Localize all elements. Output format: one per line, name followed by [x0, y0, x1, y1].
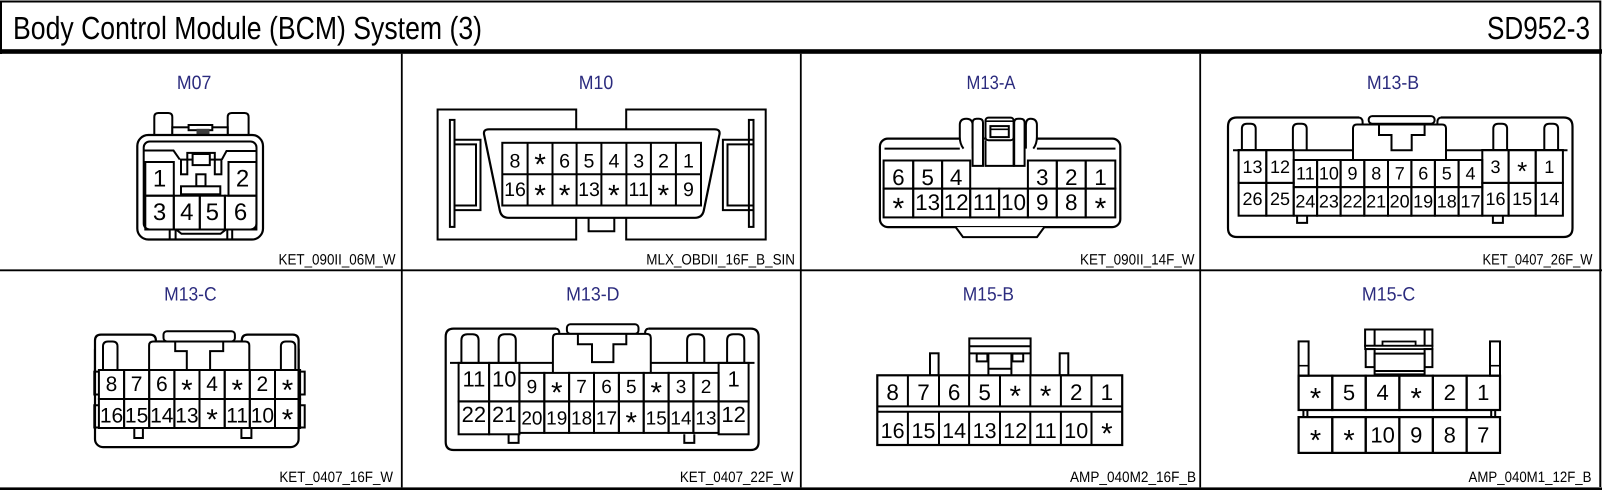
svg-text:*: *: [1517, 156, 1527, 186]
svg-text:3: 3: [153, 199, 166, 226]
svg-text:12: 12: [1003, 419, 1027, 443]
svg-text:13: 13: [578, 179, 600, 201]
svg-text:*: *: [1009, 380, 1021, 413]
svg-text:24: 24: [1295, 191, 1315, 211]
svg-text:23: 23: [1319, 191, 1339, 211]
svg-text:11: 11: [1296, 164, 1315, 184]
svg-text:13: 13: [1242, 157, 1262, 177]
svg-text:*: *: [650, 377, 662, 410]
svg-text:7: 7: [1395, 164, 1405, 184]
svg-text:10: 10: [251, 405, 274, 428]
svg-text:26: 26: [1242, 189, 1262, 209]
svg-text:*: *: [534, 149, 546, 182]
svg-text:16: 16: [881, 419, 905, 443]
svg-text:4: 4: [1465, 164, 1475, 184]
svg-text:6: 6: [559, 151, 570, 173]
svg-text:2: 2: [658, 151, 669, 173]
svg-text:1: 1: [1101, 380, 1114, 405]
svg-text:*: *: [1101, 418, 1113, 451]
svg-text:10: 10: [1319, 164, 1339, 184]
svg-text:9: 9: [683, 179, 694, 201]
svg-text:11: 11: [462, 366, 485, 391]
svg-text:25: 25: [1270, 189, 1290, 209]
svg-text:17: 17: [596, 408, 617, 429]
svg-text:5: 5: [1442, 164, 1452, 184]
svg-text:13: 13: [915, 190, 940, 215]
svg-text:14: 14: [1539, 189, 1559, 209]
svg-text:9: 9: [1410, 423, 1422, 448]
svg-text:15: 15: [646, 408, 667, 429]
svg-text:11: 11: [973, 190, 996, 215]
svg-text:8: 8: [510, 151, 521, 173]
svg-text:20: 20: [521, 408, 542, 429]
svg-text:16: 16: [504, 179, 526, 201]
svg-text:*: *: [608, 180, 620, 213]
svg-text:8: 8: [1371, 164, 1381, 184]
svg-text:11: 11: [629, 179, 649, 201]
svg-text:10: 10: [1064, 419, 1088, 443]
svg-text:22: 22: [1342, 191, 1362, 211]
svg-text:*: *: [1343, 425, 1354, 457]
svg-text:7: 7: [131, 373, 143, 396]
svg-text:6: 6: [1418, 164, 1428, 184]
svg-text:10: 10: [492, 366, 516, 391]
svg-text:M15-B: M15-B: [963, 284, 1014, 305]
svg-text:4: 4: [206, 373, 218, 396]
svg-text:15: 15: [125, 405, 148, 428]
svg-text:6: 6: [601, 377, 612, 398]
svg-text:2: 2: [257, 373, 269, 396]
svg-text:2: 2: [236, 165, 249, 192]
svg-text:15: 15: [1512, 189, 1532, 209]
svg-text:11: 11: [226, 405, 248, 428]
svg-text:12: 12: [721, 402, 745, 427]
svg-text:*: *: [282, 374, 294, 407]
svg-text:14: 14: [942, 419, 966, 443]
svg-text:1: 1: [1544, 157, 1554, 177]
svg-text:1: 1: [1094, 165, 1107, 190]
svg-text:*: *: [534, 180, 546, 213]
svg-text:AMP_040M1_12F_B: AMP_040M1_12F_B: [1469, 469, 1592, 486]
svg-text:10: 10: [1001, 190, 1026, 215]
svg-text:5: 5: [921, 165, 934, 190]
svg-text:*: *: [181, 374, 193, 407]
svg-text:5: 5: [1343, 380, 1355, 405]
svg-text:*: *: [1411, 383, 1422, 415]
svg-text:13: 13: [973, 419, 997, 443]
svg-text:*: *: [626, 407, 638, 440]
svg-text:*: *: [1310, 383, 1321, 415]
svg-text:10: 10: [1370, 423, 1394, 448]
svg-text:14: 14: [670, 408, 692, 429]
svg-text:19: 19: [546, 408, 567, 429]
svg-text:Body Control Module (BCM) Syst: Body Control Module (BCM) System (3): [13, 10, 482, 46]
svg-text:5: 5: [626, 377, 637, 398]
svg-text:18: 18: [571, 408, 592, 429]
svg-text:KET_0407_16F_W: KET_0407_16F_W: [279, 469, 393, 486]
svg-text:1: 1: [683, 151, 694, 173]
svg-text:4: 4: [1376, 380, 1388, 405]
svg-text:18: 18: [1437, 191, 1457, 211]
svg-text:4: 4: [950, 165, 963, 190]
svg-text:M10: M10: [579, 73, 613, 94]
svg-text:*: *: [282, 403, 294, 436]
svg-text:KET_0407_26F_W: KET_0407_26F_W: [1483, 251, 1594, 268]
svg-text:KET_090II_06M_W: KET_090II_06M_W: [279, 251, 397, 268]
svg-text:3: 3: [1490, 157, 1500, 177]
svg-text:4: 4: [180, 199, 193, 226]
svg-text:2: 2: [1065, 165, 1078, 190]
svg-text:7: 7: [917, 380, 930, 405]
svg-text:6: 6: [948, 380, 961, 405]
svg-text:12: 12: [944, 190, 969, 215]
svg-text:16: 16: [100, 405, 123, 428]
svg-text:17: 17: [1460, 191, 1480, 211]
svg-text:M07: M07: [177, 73, 211, 94]
svg-text:3: 3: [633, 151, 644, 173]
svg-text:1: 1: [153, 165, 166, 192]
svg-text:15: 15: [912, 419, 936, 443]
svg-text:M15-C: M15-C: [1362, 284, 1415, 305]
svg-text:*: *: [206, 403, 218, 436]
svg-text:*: *: [893, 193, 905, 226]
svg-text:2: 2: [1070, 380, 1083, 405]
svg-text:14: 14: [150, 405, 174, 428]
svg-text:13: 13: [695, 408, 716, 429]
svg-text:*: *: [1095, 193, 1107, 226]
svg-text:9: 9: [1347, 164, 1357, 184]
svg-text:4: 4: [608, 151, 619, 173]
svg-text:3: 3: [1036, 165, 1049, 190]
svg-text:*: *: [1040, 380, 1052, 413]
svg-text:*: *: [559, 180, 571, 213]
svg-text:M13-A: M13-A: [967, 73, 1016, 94]
svg-text:8: 8: [106, 373, 118, 396]
svg-text:*: *: [551, 377, 563, 410]
svg-text:7: 7: [576, 377, 587, 398]
svg-text:9: 9: [1036, 190, 1049, 215]
svg-text:7: 7: [1477, 423, 1489, 448]
svg-text:KET_090II_14F_W: KET_090II_14F_W: [1080, 251, 1195, 268]
svg-text:6: 6: [234, 199, 247, 226]
svg-text:6: 6: [892, 165, 905, 190]
svg-text:AMP_040M2_16F_B: AMP_040M2_16F_B: [1070, 469, 1196, 486]
svg-text:MLX_OBDII_16F_B_SIN: MLX_OBDII_16F_B_SIN: [646, 251, 795, 268]
svg-text:2: 2: [701, 377, 712, 398]
svg-text:6: 6: [156, 373, 168, 396]
svg-text:KET_0407_22F_W: KET_0407_22F_W: [680, 469, 794, 486]
svg-text:5: 5: [978, 380, 991, 405]
svg-text:SD952-3: SD952-3: [1487, 10, 1590, 46]
svg-text:M13-B: M13-B: [1367, 73, 1419, 94]
svg-text:22: 22: [462, 402, 486, 427]
svg-text:8: 8: [1065, 190, 1078, 215]
svg-text:*: *: [231, 374, 243, 407]
svg-text:3: 3: [676, 377, 687, 398]
svg-text:1: 1: [1477, 380, 1489, 405]
svg-text:20: 20: [1390, 191, 1410, 211]
svg-text:2: 2: [1444, 380, 1456, 405]
svg-text:21: 21: [1366, 191, 1386, 211]
svg-text:*: *: [658, 180, 670, 213]
svg-text:9: 9: [527, 377, 538, 398]
svg-text:1: 1: [727, 366, 739, 391]
svg-text:*: *: [1310, 425, 1321, 457]
svg-text:13: 13: [175, 405, 198, 428]
svg-text:12: 12: [1270, 157, 1290, 177]
svg-text:21: 21: [492, 402, 516, 427]
svg-text:M13-C: M13-C: [164, 284, 217, 305]
svg-text:11: 11: [1034, 419, 1056, 443]
svg-text:8: 8: [1444, 423, 1456, 448]
svg-text:8: 8: [886, 380, 899, 405]
svg-text:19: 19: [1413, 191, 1433, 211]
svg-text:5: 5: [206, 199, 219, 226]
svg-text:16: 16: [1485, 189, 1505, 209]
svg-text:5: 5: [584, 151, 595, 173]
svg-text:M13-D: M13-D: [566, 284, 619, 305]
